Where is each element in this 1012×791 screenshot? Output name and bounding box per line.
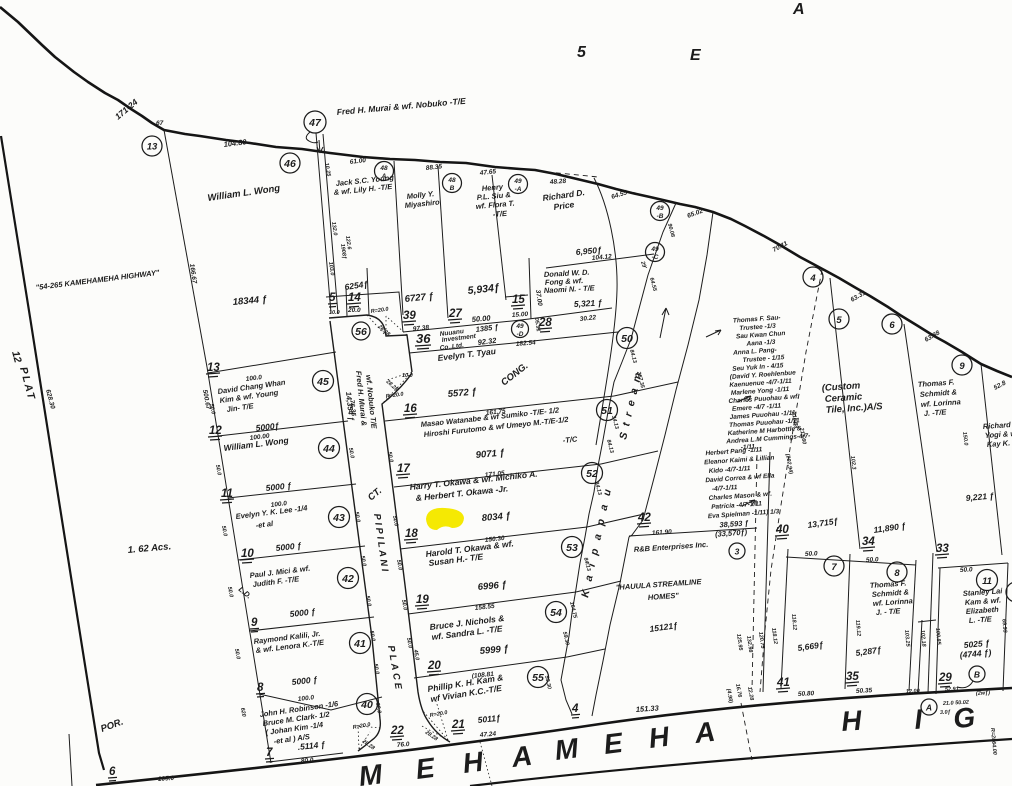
svg-text:3: 3 xyxy=(735,547,740,557)
svg-text:48: 48 xyxy=(379,165,388,172)
svg-text:20.0: 20.0 xyxy=(347,307,361,314)
svg-text:55: 55 xyxy=(532,672,544,684)
svg-text:10.0: 10.0 xyxy=(402,373,413,379)
svg-text:22: 22 xyxy=(390,725,404,737)
svg-text:80.0: 80.0 xyxy=(301,757,315,765)
svg-text:46: 46 xyxy=(283,158,296,170)
svg-text:10.0: 10.0 xyxy=(329,310,340,316)
svg-text:-T/C: -T/C xyxy=(562,434,578,445)
svg-text:76.0: 76.0 xyxy=(397,741,411,749)
svg-text:18: 18 xyxy=(405,528,418,540)
svg-text:J. -T/E: J. -T/E xyxy=(924,407,948,418)
svg-text:A: A xyxy=(509,740,534,773)
svg-text:6: 6 xyxy=(109,766,116,778)
svg-text:52.91: 52.91 xyxy=(945,686,959,693)
svg-text:105.0: 105.0 xyxy=(158,775,175,783)
svg-text:47: 47 xyxy=(308,117,322,129)
svg-text:8: 8 xyxy=(894,568,900,579)
svg-text:-T/E: -T/E xyxy=(492,209,508,219)
svg-text:27: 27 xyxy=(448,308,462,320)
svg-text:3.0ƒ: 3.0ƒ xyxy=(940,709,951,716)
svg-text:13: 13 xyxy=(147,142,158,153)
svg-text:A: A xyxy=(925,703,932,713)
svg-text:34: 34 xyxy=(862,536,875,548)
svg-text:12: 12 xyxy=(209,425,222,437)
svg-text:6: 6 xyxy=(889,320,895,331)
svg-text:-C: -C xyxy=(652,254,659,261)
svg-text:12.00: 12.00 xyxy=(906,688,920,695)
svg-text:-D: -D xyxy=(517,331,524,338)
svg-text:16: 16 xyxy=(404,403,417,415)
svg-text:40: 40 xyxy=(775,524,789,536)
svg-text:49: 49 xyxy=(515,323,524,330)
svg-text:20: 20 xyxy=(427,660,441,672)
svg-text:50.0: 50.0 xyxy=(805,550,818,558)
svg-text:13: 13 xyxy=(207,362,220,374)
svg-text:28: 28 xyxy=(538,317,552,329)
svg-text:151.33: 151.33 xyxy=(636,703,660,714)
svg-text:7: 7 xyxy=(831,562,837,573)
svg-text:49: 49 xyxy=(650,246,659,253)
svg-text:A: A xyxy=(792,1,805,18)
svg-text:43: 43 xyxy=(332,512,345,524)
svg-text:11: 11 xyxy=(221,488,233,500)
svg-text:42: 42 xyxy=(341,573,354,585)
svg-text:41: 41 xyxy=(776,677,790,689)
svg-text:10: 10 xyxy=(241,548,254,560)
svg-text:4: 4 xyxy=(571,703,579,715)
svg-text:67: 67 xyxy=(156,120,164,127)
svg-text:M: M xyxy=(553,732,581,766)
svg-text:50.0: 50.0 xyxy=(866,556,879,564)
svg-text:9: 9 xyxy=(959,361,965,372)
svg-text:5,321 ƒ: 5,321 ƒ xyxy=(574,298,603,309)
svg-text:50.35: 50.35 xyxy=(856,687,873,695)
svg-text:M: M xyxy=(357,758,385,786)
svg-text:33: 33 xyxy=(936,543,949,555)
svg-text:J. - T/E: J. - T/E xyxy=(876,606,902,617)
svg-text:(2wƒ): (2wƒ) xyxy=(976,690,991,697)
svg-text:69.93: 69.93 xyxy=(1000,619,1007,633)
svg-text:H: H xyxy=(840,705,863,737)
svg-text:E: E xyxy=(690,47,702,64)
svg-text:29: 29 xyxy=(938,672,952,684)
svg-text:41: 41 xyxy=(353,638,366,650)
svg-text:42: 42 xyxy=(637,512,651,524)
svg-text:B: B xyxy=(450,185,455,192)
svg-text:7: 7 xyxy=(266,747,273,759)
svg-text:50: 50 xyxy=(621,333,633,345)
svg-text:36: 36 xyxy=(416,331,431,346)
svg-text:39: 39 xyxy=(403,310,416,322)
svg-text:21: 21 xyxy=(451,719,465,731)
svg-text:8: 8 xyxy=(257,682,264,694)
svg-text:G: G xyxy=(952,702,976,734)
svg-text:45: 45 xyxy=(316,376,329,388)
svg-text:53: 53 xyxy=(566,542,578,554)
svg-text:161.90: 161.90 xyxy=(652,529,673,537)
svg-text:19: 19 xyxy=(416,594,429,606)
svg-text:52: 52 xyxy=(586,468,598,480)
svg-text:48: 48 xyxy=(447,177,456,184)
svg-text:5: 5 xyxy=(577,44,587,61)
svg-text:50.80: 50.80 xyxy=(798,690,815,698)
svg-text:4: 4 xyxy=(809,273,816,284)
svg-text:17: 17 xyxy=(397,463,410,475)
svg-text:Kay K.: Kay K. xyxy=(987,438,1011,449)
svg-text:14: 14 xyxy=(348,292,361,304)
svg-text:49: 49 xyxy=(513,178,522,185)
svg-text:35: 35 xyxy=(846,671,859,683)
svg-text:44: 44 xyxy=(322,443,335,455)
svg-text:50.0: 50.0 xyxy=(960,566,973,574)
svg-text:50.00: 50.00 xyxy=(471,313,491,324)
svg-text:-B: -B xyxy=(657,213,664,220)
svg-text:48.28: 48.28 xyxy=(549,178,567,186)
svg-text:15: 15 xyxy=(512,294,525,306)
svg-text:5: 5 xyxy=(836,315,842,326)
svg-text:9: 9 xyxy=(251,617,258,629)
svg-text:11: 11 xyxy=(982,576,992,587)
svg-text:56: 56 xyxy=(355,326,367,338)
svg-text:A: A xyxy=(692,716,717,749)
svg-text:40: 40 xyxy=(360,699,373,711)
svg-text:-A: -A xyxy=(515,186,522,193)
svg-text:15.00: 15.00 xyxy=(512,311,529,319)
svg-text:49: 49 xyxy=(655,205,664,212)
svg-text:5: 5 xyxy=(329,292,336,304)
svg-text:B: B xyxy=(974,670,980,680)
svg-text:L. -T/E: L. -T/E xyxy=(969,614,993,625)
svg-text:54: 54 xyxy=(550,607,562,619)
